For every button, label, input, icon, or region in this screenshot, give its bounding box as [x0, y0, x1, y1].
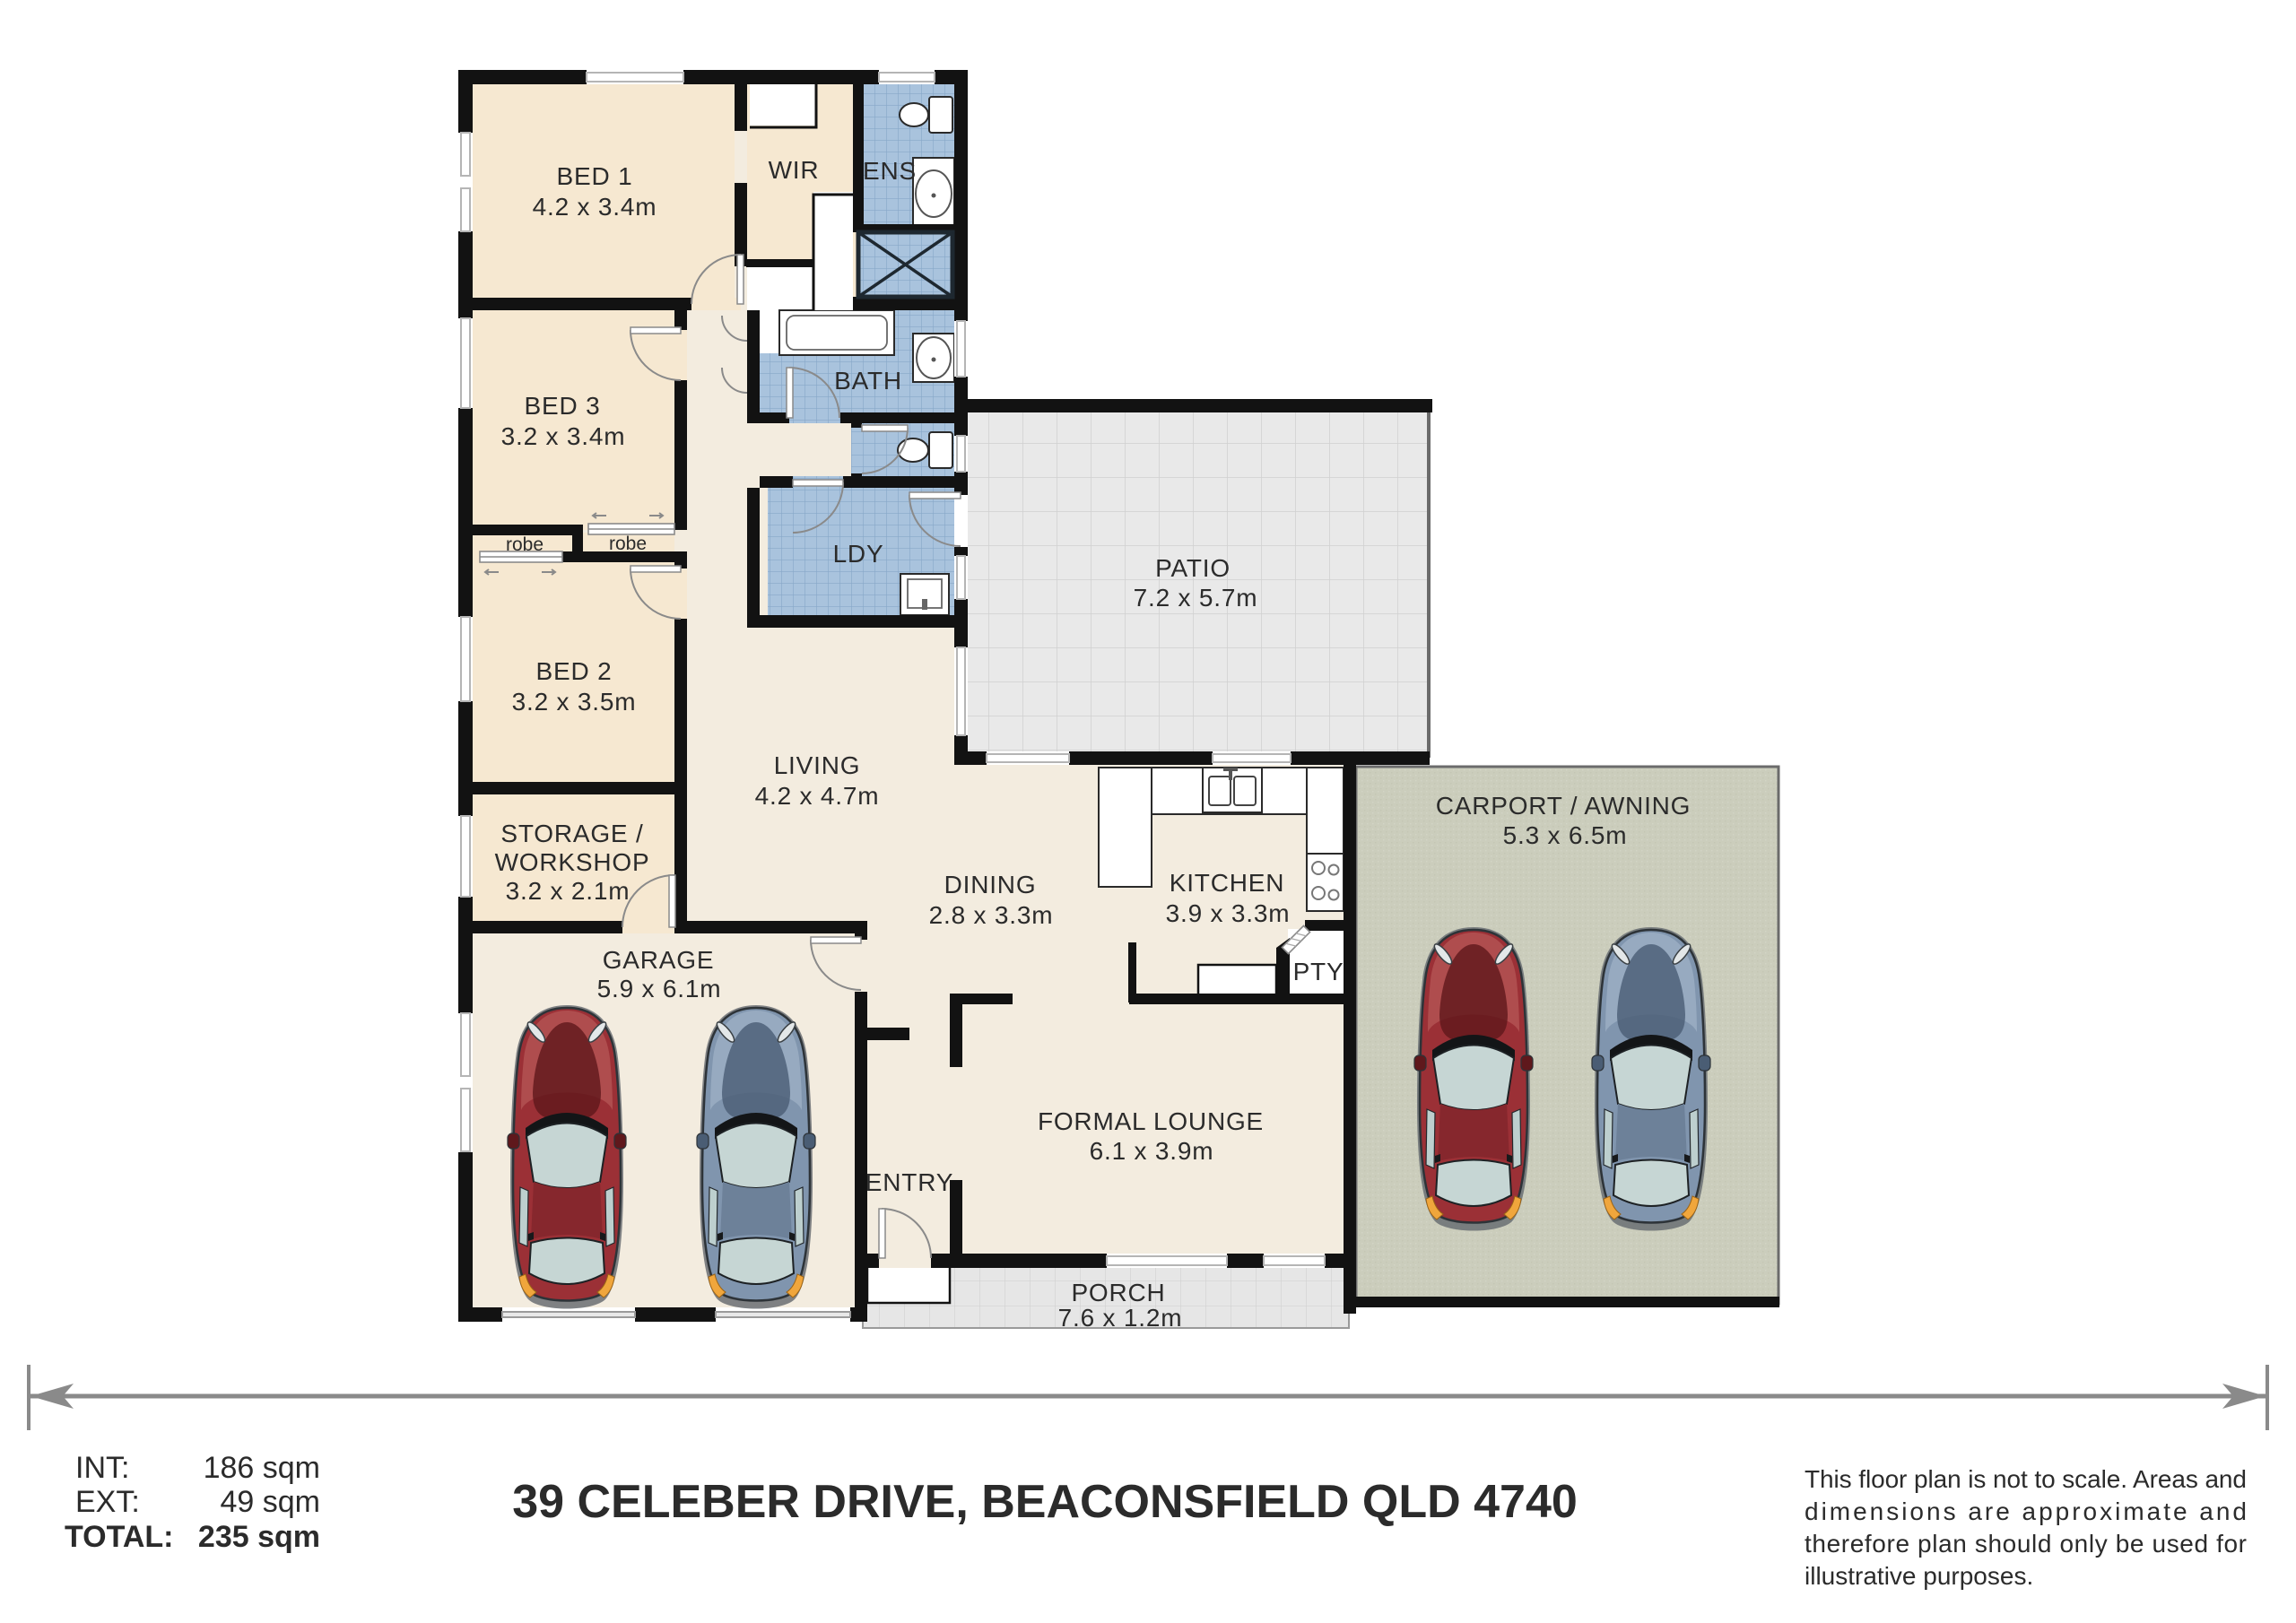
svg-text:This floor plan is not to scal: This floor plan is not to scale. Areas a… [1805, 1465, 2247, 1493]
svg-text:TOTAL:: TOTAL: [65, 1520, 174, 1554]
svg-text:ENS: ENS [863, 157, 917, 185]
svg-text:3.9 x 3.3m: 3.9 x 3.3m [1166, 899, 1291, 927]
svg-text:6.1 x 3.9m: 6.1 x 3.9m [1090, 1137, 1214, 1165]
svg-text:3.2 x 3.5m: 3.2 x 3.5m [512, 688, 637, 716]
svg-text:WIR: WIR [769, 156, 820, 184]
svg-text:STORAGE /: STORAGE / [500, 820, 643, 847]
svg-text:dimensions are approximate and: dimensions are approximate and [1805, 1497, 2247, 1525]
svg-text:robe: robe [506, 534, 544, 555]
svg-text:WORKSHOP: WORKSHOP [495, 848, 650, 876]
svg-text:4.2 x 4.7m: 4.2 x 4.7m [755, 782, 880, 810]
svg-text:3.2 x 2.1m: 3.2 x 2.1m [506, 877, 631, 905]
svg-text:2.8 x 3.3m: 2.8 x 3.3m [929, 901, 1054, 929]
svg-text:CARPORT / AWNING: CARPORT / AWNING [1436, 792, 1692, 820]
svg-text:3.2 x 3.4m: 3.2 x 3.4m [501, 422, 626, 450]
svg-text:BED 3: BED 3 [525, 392, 601, 420]
svg-text:BED 1: BED 1 [557, 162, 633, 190]
svg-text:235 sqm: 235 sqm [198, 1520, 320, 1554]
svg-text:EXT:: EXT: [75, 1485, 140, 1519]
svg-text:PTY: PTY [1293, 958, 1344, 985]
svg-text:4.2 x 3.4m: 4.2 x 3.4m [533, 193, 657, 221]
svg-text:LDY: LDY [833, 540, 884, 568]
svg-text:7.6 x 1.2m: 7.6 x 1.2m [1058, 1304, 1183, 1332]
svg-text:GARAGE: GARAGE [603, 946, 715, 974]
svg-text:5.9 x 6.1m: 5.9 x 6.1m [597, 975, 722, 1002]
svg-text:ENTRY: ENTRY [865, 1168, 953, 1196]
svg-text:5.3 x 6.5m: 5.3 x 6.5m [1503, 821, 1628, 849]
svg-text:INT:: INT: [75, 1451, 129, 1485]
svg-text:robe: robe [609, 534, 647, 554]
svg-text:LIVING: LIVING [774, 751, 861, 779]
svg-text:39 CELEBER DRIVE, BEACONSFIELD: 39 CELEBER DRIVE, BEACONSFIELD QLD 4740 [512, 1476, 1578, 1528]
svg-text:BED 2: BED 2 [536, 657, 613, 685]
svg-text:KITCHEN: KITCHEN [1170, 869, 1285, 897]
svg-text:49 sqm: 49 sqm [221, 1485, 321, 1519]
svg-text:PATIO: PATIO [1155, 554, 1231, 582]
svg-text:BATH: BATH [834, 367, 902, 395]
svg-text:DINING: DINING [944, 871, 1037, 898]
svg-text:PORCH: PORCH [1071, 1279, 1165, 1306]
svg-text:illustrative purposes.: illustrative purposes. [1805, 1562, 2033, 1590]
svg-text:7.2 x 5.7m: 7.2 x 5.7m [1134, 584, 1258, 612]
svg-text:FORMAL LOUNGE: FORMAL LOUNGE [1038, 1107, 1264, 1135]
svg-text:186 sqm: 186 sqm [204, 1451, 320, 1485]
svg-text:therefore plan should only be: therefore plan should only be used for [1805, 1530, 2247, 1558]
